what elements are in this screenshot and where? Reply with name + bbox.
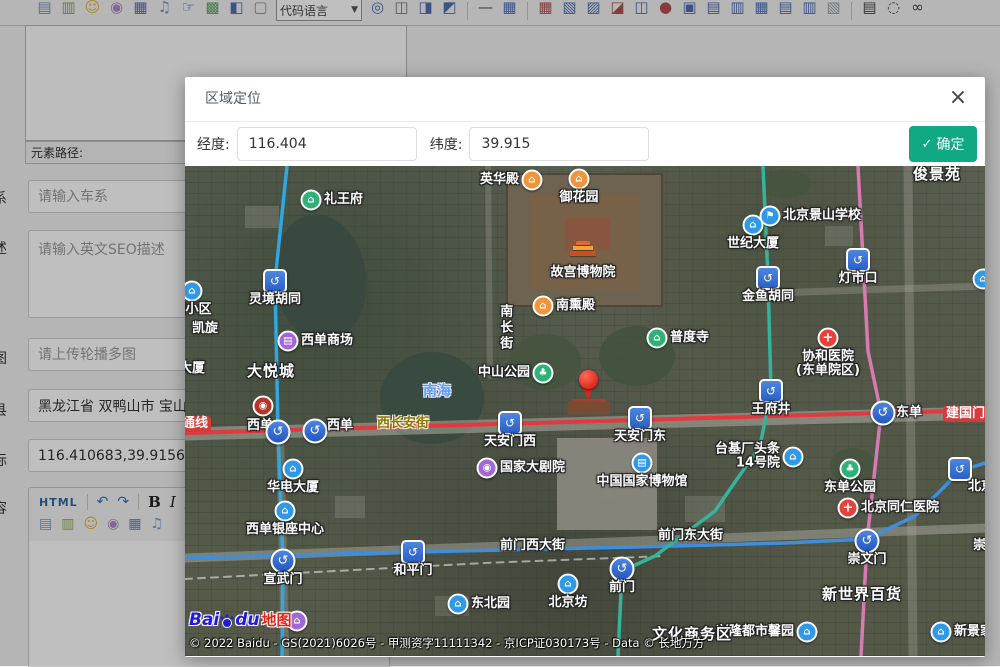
pin-tail — [583, 387, 593, 401]
map-label-text: 中国国家博物馆 — [596, 475, 687, 489]
subway-station-icon: ↺ — [855, 529, 880, 554]
map-label-text: 前门 — [609, 581, 635, 595]
map-label-text: 北京景山学校 — [783, 209, 861, 223]
map-label-text: 南海 — [423, 384, 451, 399]
map-label-text: 御花园 — [559, 191, 598, 205]
map-label-text: 西长安街 — [377, 417, 429, 431]
poi-icon: ⌂ — [783, 447, 804, 468]
pin-head — [579, 370, 598, 389]
map-label-text: 灯市口 — [838, 272, 877, 286]
baidu-logo: Bai du 地图 — [189, 609, 292, 630]
poi-icon: ⌂ — [558, 574, 579, 595]
map-label-text: 西单商场 — [301, 334, 353, 348]
map-label-text: 新世界百货 — [822, 586, 902, 603]
map-label-text: 灵境胡同 — [249, 293, 301, 307]
map-label-text: 新景家园 — [954, 625, 985, 639]
latitude-input[interactable] — [469, 127, 649, 161]
poi-icon: ⌂ — [569, 169, 590, 190]
map-attribution: © 2022 Baidu - GS(2021)6026号 - 甲测资字11111… — [189, 635, 704, 651]
map-label-text: 北京同仁医院 — [861, 501, 939, 515]
map-label-text: 台基厂头条 14号院 — [715, 443, 780, 472]
baidu-logo-du: du — [235, 610, 259, 630]
map-label-text: 天安门西 — [484, 435, 536, 449]
baidu-logo-bai: Bai — [189, 610, 219, 630]
region-locate-dialog: 区域定位 × 经度: 纬度: ✓ 确定 — [185, 77, 985, 657]
map-label-text: 通线 — [185, 416, 211, 432]
map-label-text: 东北园 — [471, 597, 510, 611]
map-label-text: 英华殿 — [480, 173, 519, 187]
poi-icon: ▤ — [632, 453, 653, 474]
subway-station-icon: ↺ — [303, 419, 328, 444]
poi-icon: ⌂ — [301, 190, 322, 211]
map-label-text: 南长街 — [497, 304, 511, 352]
poi-icon: ⌂ — [533, 296, 554, 317]
check-icon: ✓ — [922, 137, 933, 152]
map-label-text: 大厦 — [185, 362, 205, 376]
hospital-cross-icon: + — [818, 328, 839, 349]
longitude-label: 经度: — [197, 134, 230, 154]
map-label-text: 前门西大街 — [500, 539, 565, 553]
map-canvas[interactable]: Bai du 地图 © 2022 Baidu - GS(2021)6026号 -… — [185, 166, 985, 656]
dialog-header: 区域定位 × — [185, 77, 985, 122]
poi-icon: ⌂ — [647, 328, 668, 349]
nanchang-street-road — [488, 166, 490, 376]
subway-station-icon: ↺ — [610, 557, 635, 582]
map-label-text: 华电大厦 — [267, 481, 319, 495]
coordinate-controls: 经度: 纬度: ✓ 确定 — [185, 122, 985, 166]
map-label-text: 王府井 — [751, 403, 790, 417]
map-label-text: 国家大剧院 — [500, 461, 565, 475]
map-label-text: 西单 — [327, 419, 353, 433]
map-label-text: 北京坊 — [548, 596, 587, 610]
map-label-text: 东单公园 — [824, 481, 876, 495]
map-label-text: 世纪大厦 — [727, 237, 779, 251]
map-label-text: 普度寺 — [670, 331, 709, 345]
subway-station-icon: ↺ — [756, 266, 780, 290]
map-label-text: 凯旋 — [192, 322, 218, 336]
map-label-text: 园小区 — [185, 303, 212, 317]
poi-icon: ⌂ — [283, 459, 304, 480]
longitude-input[interactable] — [237, 127, 417, 161]
poi-icon: ⌂ — [797, 622, 818, 643]
confirm-button-label: 确定 — [936, 134, 964, 154]
subway-station-icon: ↺ — [628, 406, 652, 430]
subway-station-icon: ↺ — [871, 401, 896, 426]
map-label-text: 崇文门 — [847, 553, 886, 567]
poi-icon: ⌂ — [275, 501, 296, 522]
map-label-text: 和平门 — [393, 564, 432, 578]
map-label-text: 西单银座中心 — [246, 523, 324, 537]
confirm-button[interactable]: ✓ 确定 — [909, 126, 977, 162]
subway-station-icon: ↺ — [759, 379, 783, 403]
poi-icon: ♣ — [840, 459, 861, 480]
map-label-text: 北京站 — [968, 480, 985, 494]
poi-icon: ♣ — [533, 363, 554, 384]
close-icon[interactable]: × — [945, 85, 971, 111]
poi-icon: ⌂ — [931, 622, 952, 643]
map-label-text: 建国门内 — [943, 406, 985, 422]
map-label-text: 天安门东 — [614, 430, 666, 444]
poi-icon: ▤ — [278, 331, 299, 352]
poi-icon: ⌂ — [743, 215, 764, 236]
poi-icon: ⌂ — [448, 594, 469, 615]
map-label-text: 礼王府 — [324, 193, 363, 207]
map-label-text: 大悦城 — [247, 363, 295, 380]
map-label-text: 宣武门 — [263, 573, 302, 587]
map-label-text: 俊景苑 — [913, 166, 961, 182]
poi-icon: ◉ — [253, 396, 274, 417]
subway-station-icon: ↺ — [948, 457, 972, 481]
map-label-text: 东单 — [896, 406, 922, 420]
latitude-label: 纬度: — [430, 134, 463, 154]
map-label-text: 金鱼胡同 — [742, 290, 794, 304]
subway-station-icon: ↺ — [846, 248, 870, 272]
map-label-text: 南熏殿 — [556, 299, 595, 313]
baidu-paw-icon — [223, 619, 231, 627]
poi-icon: ◉ — [477, 458, 498, 479]
baidu-logo-map-text: 地图 — [262, 609, 292, 630]
map-label-text: 中山公园 — [478, 366, 530, 380]
poi-icon: ⌂ — [522, 170, 543, 191]
subway-station-icon: ↺ — [401, 540, 425, 564]
subway-station-icon: ↺ — [263, 269, 287, 293]
dialog-title: 区域定位 — [205, 77, 261, 121]
map-label-text: 协和医院 (东单院区) — [796, 350, 860, 379]
map-label-text: 前门东大街 — [658, 529, 723, 543]
map-label-text: 崇文 — [973, 539, 985, 553]
map-lines-layer — [185, 166, 985, 656]
subway-station-icon: ↺ — [266, 420, 291, 445]
map-label-text: 故宫博物院 — [550, 266, 615, 280]
subway-station-icon: ↺ — [271, 549, 296, 574]
subway-station-icon: ↺ — [498, 411, 522, 435]
hospital-cross-icon: + — [838, 498, 859, 519]
